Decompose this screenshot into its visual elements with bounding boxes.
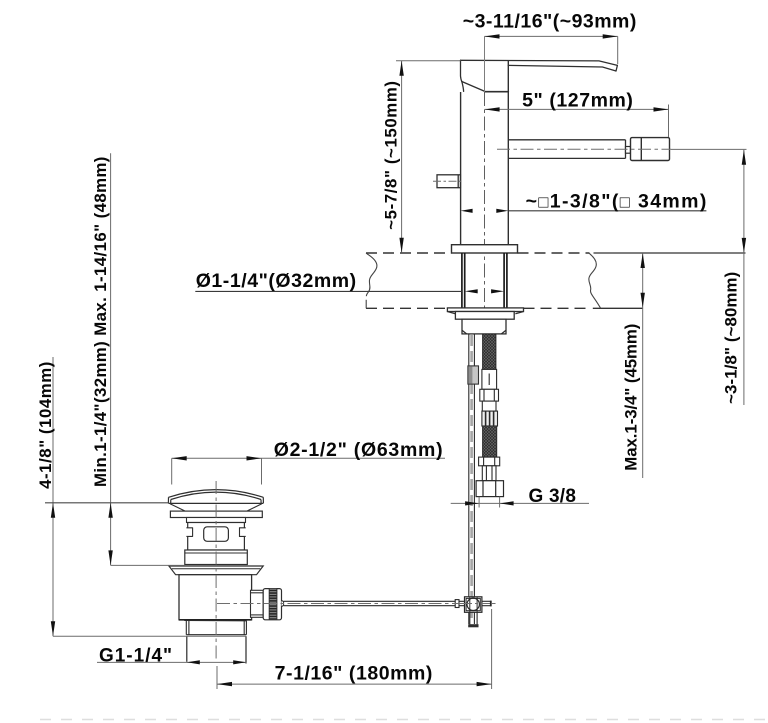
svg-text:5" (127mm): 5" (127mm) — [522, 90, 633, 112]
svg-text:G1-1/4": G1-1/4" — [99, 645, 173, 666]
svg-text:Ø1-1/4"(Ø32mm): Ø1-1/4"(Ø32mm) — [196, 270, 357, 292]
svg-text:~5-7/8" (~150mm): ~5-7/8" (~150mm) — [381, 80, 400, 229]
svg-text:~3-11/16"(~93mm): ~3-11/16"(~93mm) — [463, 10, 637, 32]
svg-text:7-1/16" (180mm): 7-1/16" (180mm) — [275, 662, 433, 684]
svg-text:Min.1-1/4"(32mm) Max. 1-14/16": Min.1-1/4"(32mm) Max. 1-14/16" (48mm) — [91, 156, 110, 487]
svg-text:~□1-3/8"(□ 34mm): ~□1-3/8"(□ 34mm) — [526, 191, 708, 213]
svg-text:Max.1-3/4" (45mm): Max.1-3/4" (45mm) — [622, 324, 641, 471]
svg-text:~3-1/8" (~80mm): ~3-1/8" (~80mm) — [722, 272, 741, 404]
svg-text:4-1/8" (104mm): 4-1/8" (104mm) — [36, 361, 55, 489]
svg-text:Ø2-1/2" (Ø63mm): Ø2-1/2" (Ø63mm) — [274, 439, 444, 461]
svg-text:G 3/8: G 3/8 — [528, 486, 576, 507]
